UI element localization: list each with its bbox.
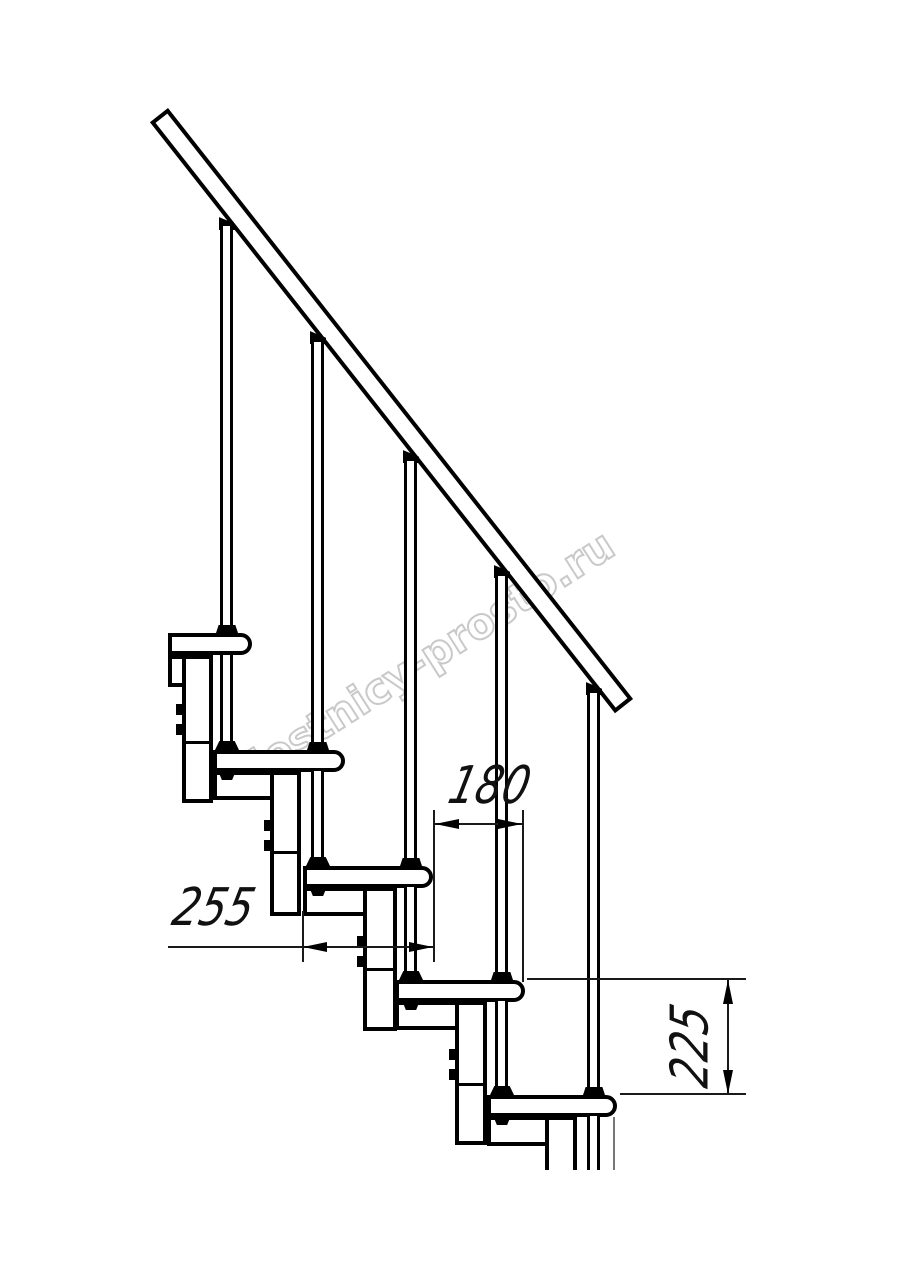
column-2-joint-line bbox=[270, 851, 301, 854]
bolt-icon bbox=[357, 956, 364, 967]
dim-label-step-rise: 225 bbox=[665, 1000, 717, 1091]
baluster-3-foot bbox=[399, 971, 423, 980]
arrowhead-right-icon bbox=[498, 819, 522, 829]
bolt-icon bbox=[176, 724, 183, 735]
support-column-2 bbox=[270, 771, 301, 916]
baluster-4-foot bbox=[490, 1086, 514, 1095]
ext-line-180-right bbox=[522, 810, 524, 982]
baluster-5-collar bbox=[583, 1087, 605, 1095]
baluster-1-collar bbox=[216, 625, 238, 633]
baluster-1-upper-tube bbox=[220, 226, 233, 633]
baluster-3-lower-tube bbox=[404, 887, 417, 972]
baluster-1-foot bbox=[215, 741, 239, 750]
tread-2 bbox=[213, 750, 345, 772]
support-column-1 bbox=[182, 655, 213, 803]
baluster-2-foot bbox=[306, 857, 330, 866]
bolt-icon bbox=[449, 1049, 456, 1060]
dim-label-rise-wrapper: 225 bbox=[665, 977, 717, 1092]
tread-1 bbox=[168, 633, 252, 655]
column-3-joint-line bbox=[363, 968, 397, 971]
dim-line-255 bbox=[168, 946, 434, 948]
column-4-joint-line bbox=[455, 1083, 487, 1086]
baluster-2-upper-tube bbox=[311, 342, 324, 742]
support-column-3 bbox=[363, 887, 397, 1031]
staircase-dimension-drawing: lestnicy-prosto.ru bbox=[0, 0, 914, 1280]
baluster-4-collar bbox=[491, 972, 513, 980]
tread-bracket-1 bbox=[168, 655, 186, 687]
bolt-icon bbox=[264, 820, 271, 831]
baluster-5-lower-tube bbox=[587, 1116, 600, 1170]
baluster-2-collar bbox=[307, 742, 329, 750]
dim-label-tread-depth: 255 bbox=[168, 882, 259, 934]
column-1-joint-line bbox=[182, 741, 213, 744]
arrowhead-down-icon bbox=[723, 1070, 733, 1094]
baluster-4-lower-tube bbox=[495, 1001, 508, 1087]
baluster-3-collar bbox=[400, 858, 422, 866]
bolt-icon bbox=[264, 840, 271, 851]
baluster-1-lower-tube bbox=[220, 655, 233, 742]
support-column-4 bbox=[455, 1001, 487, 1145]
bolt-icon bbox=[176, 704, 183, 715]
tread-4 bbox=[395, 980, 525, 1002]
arrowhead-left-icon bbox=[435, 819, 459, 829]
arrowhead-left-icon bbox=[303, 942, 327, 952]
arrowhead-right-icon bbox=[409, 942, 433, 952]
ext-line-255-180-shared bbox=[433, 810, 435, 962]
baluster-5-upper-tube bbox=[587, 693, 600, 1087]
drawing-cut-line bbox=[613, 1117, 615, 1170]
baluster-2-lower-tube bbox=[311, 771, 324, 858]
tread-3 bbox=[303, 866, 433, 888]
baluster-3-upper-tube bbox=[404, 461, 417, 858]
tread-5 bbox=[487, 1095, 617, 1117]
dim-label-step-run: 180 bbox=[444, 760, 535, 812]
arrowhead-up-icon bbox=[723, 980, 733, 1004]
ext-line-255-left bbox=[302, 911, 304, 962]
bolt-icon bbox=[449, 1069, 456, 1080]
support-column-5 bbox=[545, 1116, 577, 1170]
